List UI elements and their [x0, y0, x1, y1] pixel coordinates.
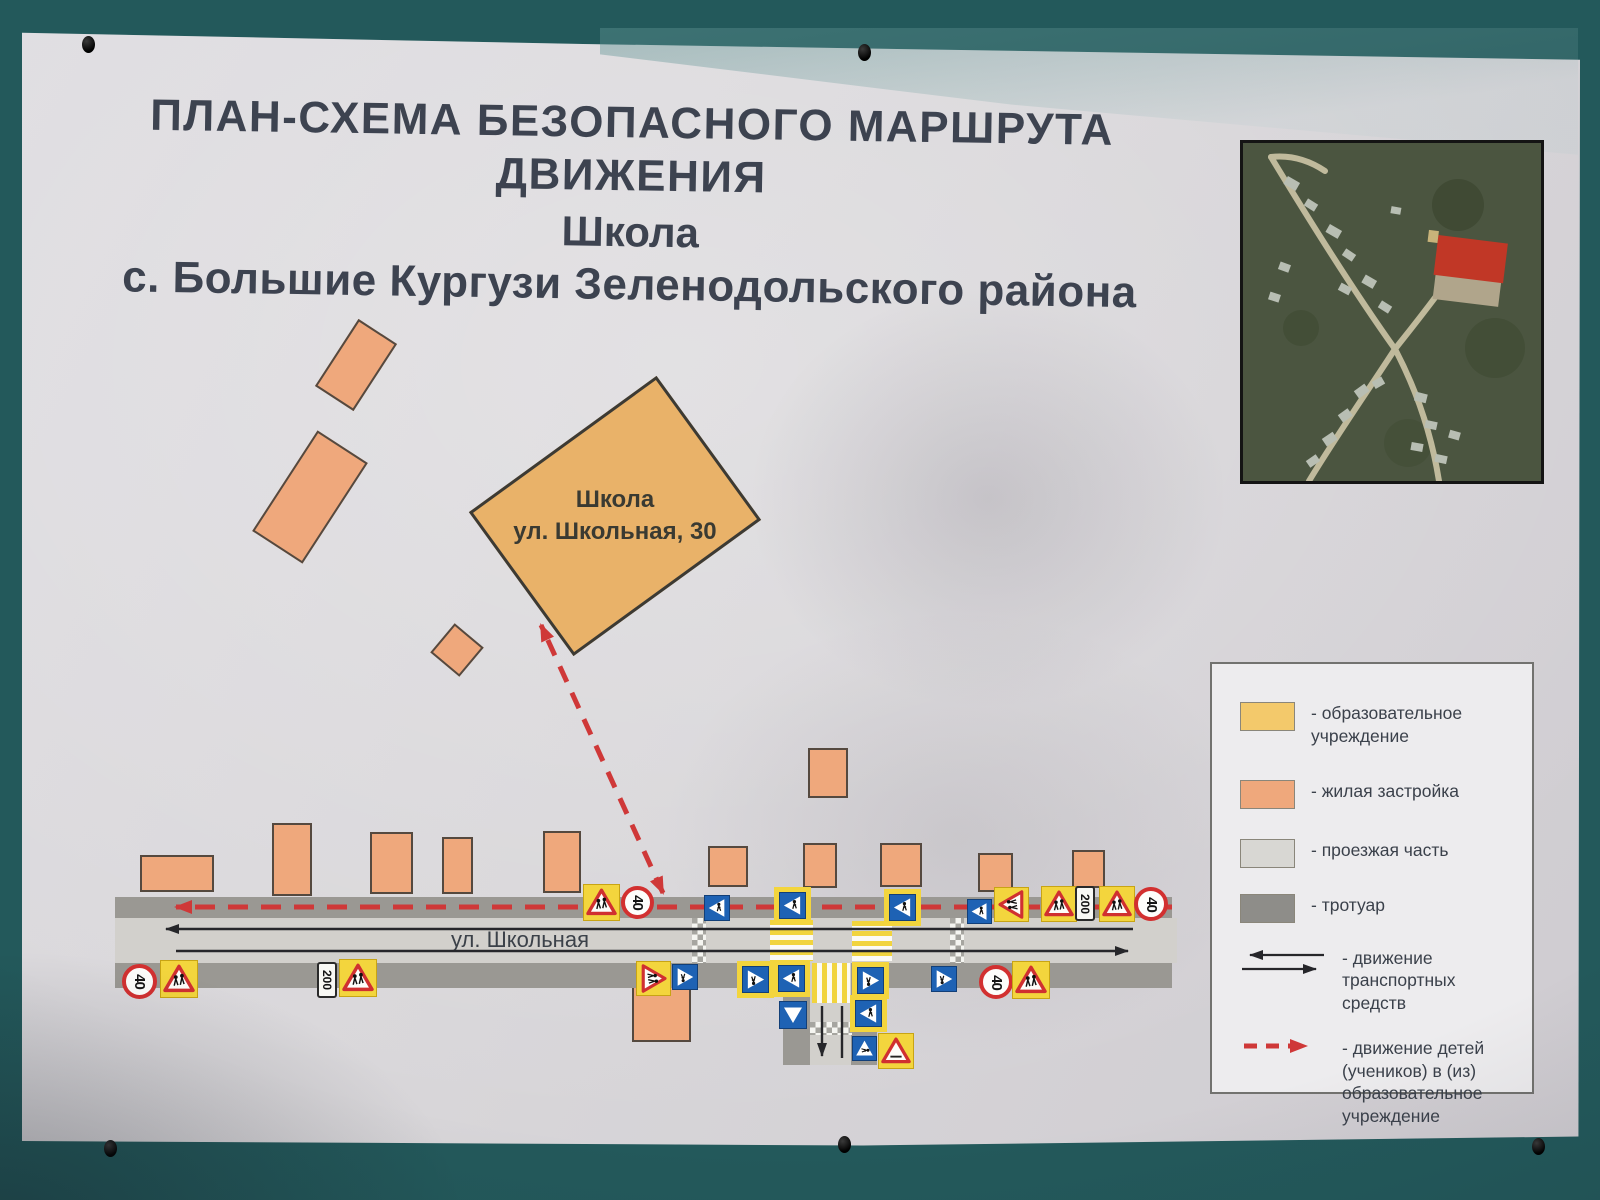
title-line-1: ПЛАН-СХЕМА БЕЗОПАСНОГО МАРШРУТА ДВИЖЕНИЯ [38, 88, 1225, 212]
legend-item-traffic-arrows: - движение транспортных средств [1240, 947, 1522, 1015]
street-name-label: ул. Школьная [420, 927, 620, 953]
legend-item-education: - образовательное учреждение [1240, 702, 1522, 748]
legend-item-sidewalk: - тротуар [1240, 894, 1522, 923]
legend-label: - движение детей (учеников) в (из) образ… [1342, 1037, 1522, 1128]
residential-building [370, 832, 413, 894]
pedestrian-crosswalk [812, 963, 850, 1003]
poster-photo-scene: ПЛАН-СХЕМА БЕЗОПАСНОГО МАРШРУТА ДВИЖЕНИЯ… [0, 0, 1600, 1200]
legend-label: - движение транспортных средств [1342, 947, 1522, 1015]
legend-item-children-route: - движение детей (учеников) в (из) образ… [1240, 1037, 1522, 1128]
children-warning-sign [636, 961, 671, 996]
pedestrian-crossing-sign [779, 892, 806, 919]
children-warning-sign [1041, 886, 1077, 922]
pedestrian-crossing-sign [855, 1000, 882, 1027]
school-label-line-1: Школа [513, 484, 716, 516]
warning-triangle-sign [878, 1033, 914, 1069]
roadway-swatch [1240, 839, 1295, 868]
pedestrian-crossing-sign [857, 967, 884, 994]
residential-building [140, 855, 214, 892]
residential-building [708, 846, 748, 887]
legend: - образовательное учреждение - жилая зас… [1210, 662, 1534, 1094]
children-warning-sign [583, 884, 620, 921]
push-pin [82, 36, 95, 53]
speed-limit-40-sign: 40 [979, 965, 1013, 999]
distance-200m-plate: 200 [1075, 886, 1095, 921]
residential-building [808, 748, 848, 798]
legend-item-roadway: - проезжая часть [1240, 839, 1522, 868]
speed-limit-40-sign: 40 [621, 886, 654, 919]
pedestrian-crosswalk [852, 921, 892, 961]
pedestrian-crossing-sign [742, 966, 769, 993]
legend-item-residential: - жилая застройка [1240, 780, 1522, 809]
pedestrian-crosswalk [770, 920, 813, 961]
traffic-arrows-icon [1240, 947, 1326, 977]
satellite-image [1240, 140, 1544, 484]
distance-200m-plate: 200 [317, 962, 337, 998]
children-warning-sign [1099, 886, 1135, 922]
children-route-icon [1240, 1037, 1326, 1055]
residential-building [880, 843, 922, 887]
poster-title: ПЛАН-СХЕМА БЕЗОПАСНОГО МАРШРУТА ДВИЖЕНИЯ… [37, 88, 1225, 321]
legend-label: - проезжая часть [1311, 839, 1507, 862]
sidewalk-swatch [1240, 894, 1295, 923]
speed-limit-40-sign: 40 [1134, 887, 1168, 921]
rumble-strip [810, 1022, 852, 1035]
rumble-strip [950, 918, 964, 963]
pedestrian-crossing-sign [672, 964, 698, 990]
push-pin [104, 1140, 117, 1157]
roadway [115, 918, 1177, 963]
pedestrian-crossing-sign [931, 966, 957, 992]
give-way-sign [779, 1001, 807, 1029]
push-pin [858, 44, 871, 61]
rumble-strip [692, 918, 706, 963]
pedestrian-crossing-sign [889, 894, 916, 921]
residential-building [272, 823, 312, 896]
legend-label: - образовательное учреждение [1311, 702, 1507, 748]
residential-building [1072, 850, 1105, 888]
residential-building [442, 837, 473, 894]
pedestrian-crossing-sign [704, 895, 730, 921]
children-warning-sign [160, 960, 198, 998]
push-pin [838, 1136, 851, 1153]
education-swatch [1240, 702, 1295, 731]
residential-building [803, 843, 837, 888]
residential-swatch [1240, 780, 1295, 809]
school-label-line-2: ул. Школьная, 30 [513, 516, 716, 548]
legend-label: - тротуар [1311, 894, 1507, 917]
speed-limit-40-sign: 40 [122, 964, 157, 999]
pedestrian-crossing-sign [778, 965, 805, 992]
pedestrian-crossing-sign [852, 1036, 877, 1061]
push-pin [1532, 1138, 1545, 1155]
children-warning-sign [1012, 961, 1050, 999]
satellite-graphic [1243, 143, 1541, 481]
children-warning-sign [994, 887, 1029, 922]
children-warning-sign [339, 959, 377, 997]
residential-building [543, 831, 581, 893]
school-label: Школа ул. Школьная, 30 [513, 484, 716, 549]
legend-label: - жилая застройка [1311, 780, 1507, 803]
pedestrian-crossing-sign [967, 899, 992, 924]
